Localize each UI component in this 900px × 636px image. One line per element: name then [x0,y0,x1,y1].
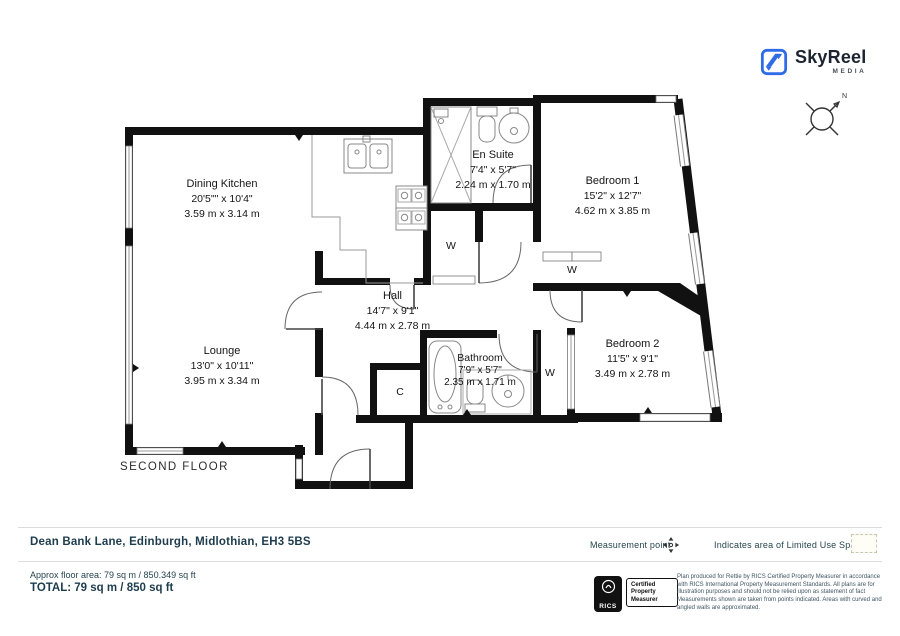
rics-logo: RICS [594,576,622,612]
certified-measurer-badge: Certified Property Measurer [626,578,678,607]
room-label-hall: Hall 14'7" x 9'1" 4.44 m x 2.78 m [330,289,455,334]
limited-use-label: Indicates area of Limited Use Space [714,540,866,550]
property-address: Dean Bank Lane, Edinburgh, Midlothian, E… [30,536,311,548]
compass-icon: N [795,88,855,146]
room-label-bathroom: Bathroom 7'9" x 5'7" 2.35 m x 1.71 m [430,352,530,390]
room-label-lounge: Lounge 13'0" x 10'11" 3.95 m x 3.34 m [142,344,302,389]
closet-label-c-cupboard: C [390,386,410,398]
closet-label-w-bedroom2: W [540,367,560,379]
room-label-bedroom-2: Bedroom 2 11'5" x 9'1" 3.49 m x 2.78 m [570,337,695,382]
rics-emblem-icon [601,579,616,594]
approx-floor-area: Approx floor area: 79 sq m / 850.349 sq … [30,570,196,580]
measurement-point-label: Measurement point [590,540,670,550]
room-label-en-suite: En Suite 7'4" x 5'7" 2.24 m x 1.70 m [437,148,549,193]
kitchen-fixtures [312,135,427,283]
measurement-point-icon [663,537,679,553]
floor-name-label: SECOND FLOOR [120,461,229,473]
room-name: Dining Kitchen [142,177,302,192]
total-floor-area: TOTAL: 79 sq m / 850 sq ft [30,582,173,594]
floor-plan-page: { "branding": { "name": "SkyReel", "tagl… [0,0,900,636]
rics-wordmark: RICS [599,603,617,610]
limited-use-swatch [851,534,877,553]
room-dims-metric: 3.59 m x 3.14 m [184,208,259,220]
skyreel-logo-icon [760,48,788,76]
brand-lockup: SkyReel MEDIA [760,48,866,76]
closet-label-w-bedroom1: W [562,264,582,276]
divider-line-top [18,527,882,528]
svg-text:N: N [842,93,847,100]
divider-line-bottom [18,561,882,562]
room-dims-imperial: 20'5"" x 10'4" [191,193,252,205]
closet-label-w-ensuite: W [441,240,461,252]
brand-tagline: MEDIA [833,69,867,76]
brand-name: SkyReel [795,48,866,66]
room-label-dining-kitchen: Dining Kitchen 20'5"" x 10'4" 3.59 m x 3… [142,177,302,222]
room-label-bedroom-1: Bedroom 1 15'2" x 12'7" 4.62 m x 3.85 m [550,174,675,219]
plan-disclaimer: Plan produced for Rettie by RICS Certifi… [677,574,882,613]
